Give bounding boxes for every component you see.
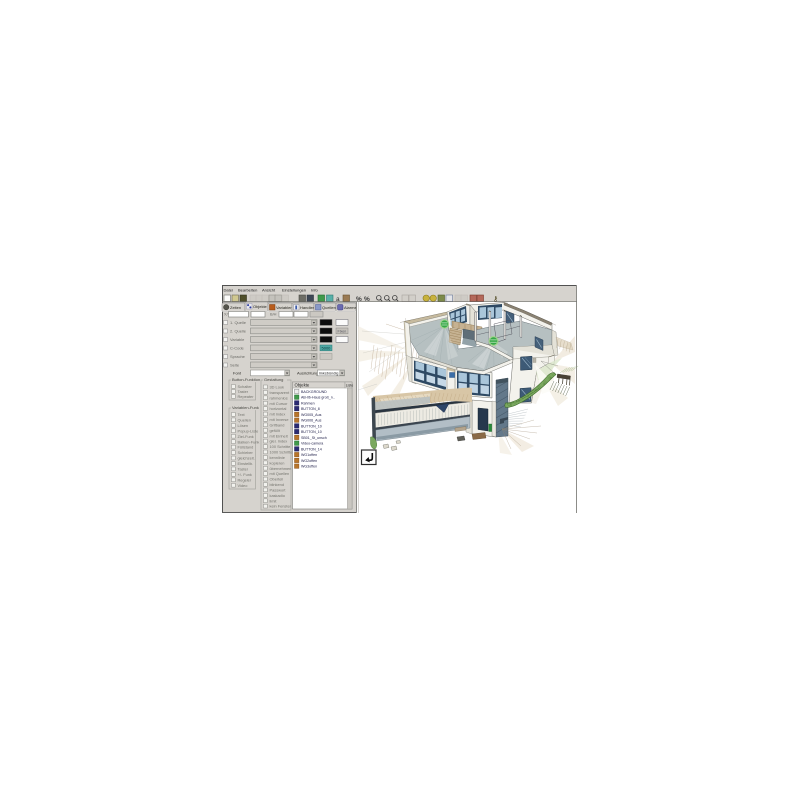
svg-text:Info: Info	[311, 287, 318, 292]
svg-text:Objekte: Objekte	[295, 383, 310, 388]
svg-text:3D Look: 3D Look	[270, 385, 285, 390]
svg-text:Füllstand: Füllstand	[238, 445, 254, 450]
svg-text:Passwort: Passwort	[270, 487, 287, 492]
svg-text:2. Quelle: 2. Quelle	[230, 328, 247, 333]
svg-text:BUTTON_10: BUTTON_10	[301, 424, 322, 428]
svg-text:Variablen-Funk: Variablen-Funk	[232, 405, 259, 410]
svg-text:Oberteil: Oberteil	[270, 477, 284, 482]
svg-text:Ziel-Funk: Ziel-Funk	[238, 434, 254, 439]
svg-text:gleichzeit.: gleichzeit.	[238, 456, 255, 461]
svg-text:Gestaltung: Gestaltung	[264, 377, 283, 382]
svg-text:WG3offen: WG3offen	[301, 465, 317, 469]
svg-text:Ausrichtung: Ausrichtung	[297, 371, 318, 376]
svg-text:Regeler: Regeler	[238, 477, 252, 482]
svg-text:Balken-Funk: Balken-Funk	[238, 439, 260, 444]
svg-text:mit Cursor: mit Cursor	[270, 401, 289, 406]
svg-text:mit Index: mit Index	[270, 412, 286, 417]
svg-text:Sprache: Sprache	[230, 354, 246, 359]
svg-text:Variable: Variable	[230, 337, 245, 342]
svg-text:B/H: B/H	[270, 312, 277, 317]
svg-text:C-Code: C-Code	[230, 345, 245, 350]
svg-text:mit Quellen: mit Quellen	[270, 471, 290, 476]
svg-text:mit Inverse: mit Inverse	[270, 417, 289, 422]
svg-text:+/- Funk: +/- Funk	[238, 472, 252, 477]
svg-text:kein Fenster: kein Fenster	[270, 504, 292, 509]
svg-text:Schieber: Schieber	[238, 450, 254, 455]
svg-text:1. Quelle: 1. Quelle	[230, 320, 247, 325]
svg-text:WG2offen: WG2offen	[301, 459, 317, 463]
svg-text:rahmenlos: rahmenlos	[270, 395, 288, 400]
svg-text:kopieren: kopieren	[270, 460, 285, 465]
svg-text:AB-Ilb-Haus groß_n..: AB-Ilb-Haus groß_n..	[301, 396, 335, 400]
svg-text:BUTTON_10: BUTTON_10	[301, 430, 322, 434]
svg-text:mit Einheit: mit Einheit	[270, 433, 289, 438]
svg-text:Rahmen: Rahmen	[301, 401, 315, 405]
svg-text:linksbündig: linksbündig	[319, 371, 338, 376]
svg-text:100 Schritte: 100 Schritte	[270, 444, 291, 449]
svg-text:Zeiten: Zeiten	[230, 305, 241, 310]
svg-text:Einstellungen: Einstellungen	[282, 287, 306, 292]
svg-text:transparent: transparent	[270, 390, 291, 395]
svg-text:Objekte: Objekte	[253, 304, 268, 309]
svg-text:Variablen: Variablen	[276, 305, 293, 310]
svg-text:Einstellb.: Einstellb.	[238, 461, 254, 466]
svg-text:Datei: Datei	[224, 287, 233, 292]
svg-text:Quellen: Quellen	[238, 417, 251, 422]
svg-text:kaskadio: kaskadio	[270, 493, 285, 498]
svg-text:Liste: Liste	[346, 383, 354, 387]
svg-text:BUTTON_14: BUTTON_14	[301, 447, 322, 451]
svg-text:Video-camera: Video-camera	[301, 442, 323, 446]
svg-text:Taster: Taster	[238, 467, 249, 472]
svg-text:Repeater: Repeater	[238, 394, 255, 399]
svg-text:übernehmen: übernehmen	[270, 466, 292, 471]
svg-text:Popup-Liste: Popup-Liste	[238, 428, 259, 433]
svg-text:Alarme: Alarme	[344, 305, 357, 310]
svg-text:Font: Font	[233, 371, 242, 376]
svg-text:5000: 5000	[322, 346, 332, 351]
svg-text:BUTTON_8: BUTTON_8	[301, 407, 320, 411]
svg-text:kennlinie: kennlinie	[270, 455, 285, 460]
svg-text:BACKGROUND: BACKGROUND	[301, 390, 327, 394]
svg-text:WG005_Aus: WG005_Aus	[301, 413, 322, 417]
svg-text:Text: Text	[238, 412, 246, 417]
svg-text:WG006_Aus: WG006_Aus	[301, 419, 322, 423]
svg-text:Quellen: Quellen	[322, 305, 336, 310]
svg-text:Video: Video	[238, 483, 248, 488]
svg-text:SB01_St_unsch: SB01_St_unsch	[301, 436, 327, 440]
svg-text:Handler: Handler	[300, 305, 315, 310]
svg-text:gefüllt: gefüllt	[270, 428, 281, 433]
svg-text:WG1offen: WG1offen	[301, 453, 317, 457]
svg-text:blinkend: blinkend	[270, 482, 285, 487]
svg-text:Button-Funktion: Button-Funktion	[232, 377, 260, 382]
svg-text:Grifband: Grifband	[270, 422, 285, 427]
svg-text:Lösen: Lösen	[238, 423, 249, 428]
svg-text:Bearbeiten: Bearbeiten	[238, 287, 257, 292]
svg-text:1000 Schritte: 1000 Schritte	[270, 450, 293, 455]
svg-text:horizontal: horizontal	[270, 406, 287, 411]
svg-text:glei. Index: glei. Index	[270, 439, 288, 444]
svg-text:Fixen: Fixen	[338, 329, 347, 333]
svg-text:Seite: Seite	[230, 362, 240, 367]
svg-text:limit: limit	[270, 498, 278, 503]
svg-text:Ansicht: Ansicht	[262, 287, 276, 292]
